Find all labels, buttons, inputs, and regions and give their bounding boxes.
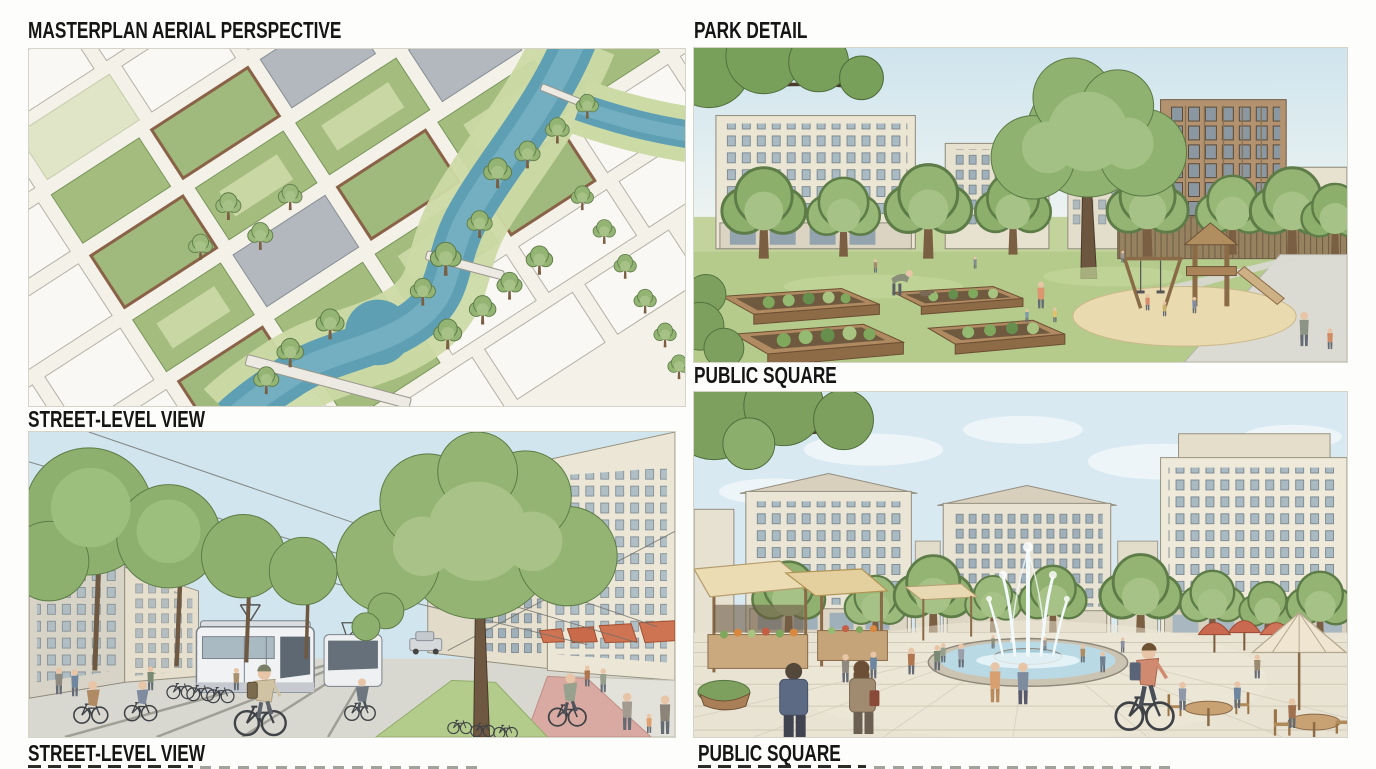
panel-caption-street: STREET-LEVEL VIEW xyxy=(28,742,264,765)
panel-public-square xyxy=(693,391,1348,738)
panel-caption-square: PUBLIC SQUARE xyxy=(698,742,888,765)
masterplan-aerial-illustration xyxy=(29,49,685,406)
panel-title-street: STREET-LEVEL VIEW xyxy=(28,408,264,431)
panel-park-detail xyxy=(693,47,1348,363)
panel-title-park: PARK DETAIL xyxy=(694,19,845,42)
panel-street-level xyxy=(28,431,676,738)
public-square-illustration xyxy=(694,392,1347,737)
presentation-board: MASTERPLAN AERIAL PERSPECTIVE PARK DETAI… xyxy=(0,0,1376,768)
park-detail-illustration xyxy=(694,48,1347,362)
panel-title-square: PUBLIC SQUARE xyxy=(694,364,884,387)
panel-masterplan-aerial xyxy=(28,48,686,407)
panel-title-masterplan: MASTERPLAN AERIAL PERSPECTIVE xyxy=(28,19,446,42)
sidewalk-right xyxy=(525,676,675,737)
street-level-illustration xyxy=(29,432,675,737)
